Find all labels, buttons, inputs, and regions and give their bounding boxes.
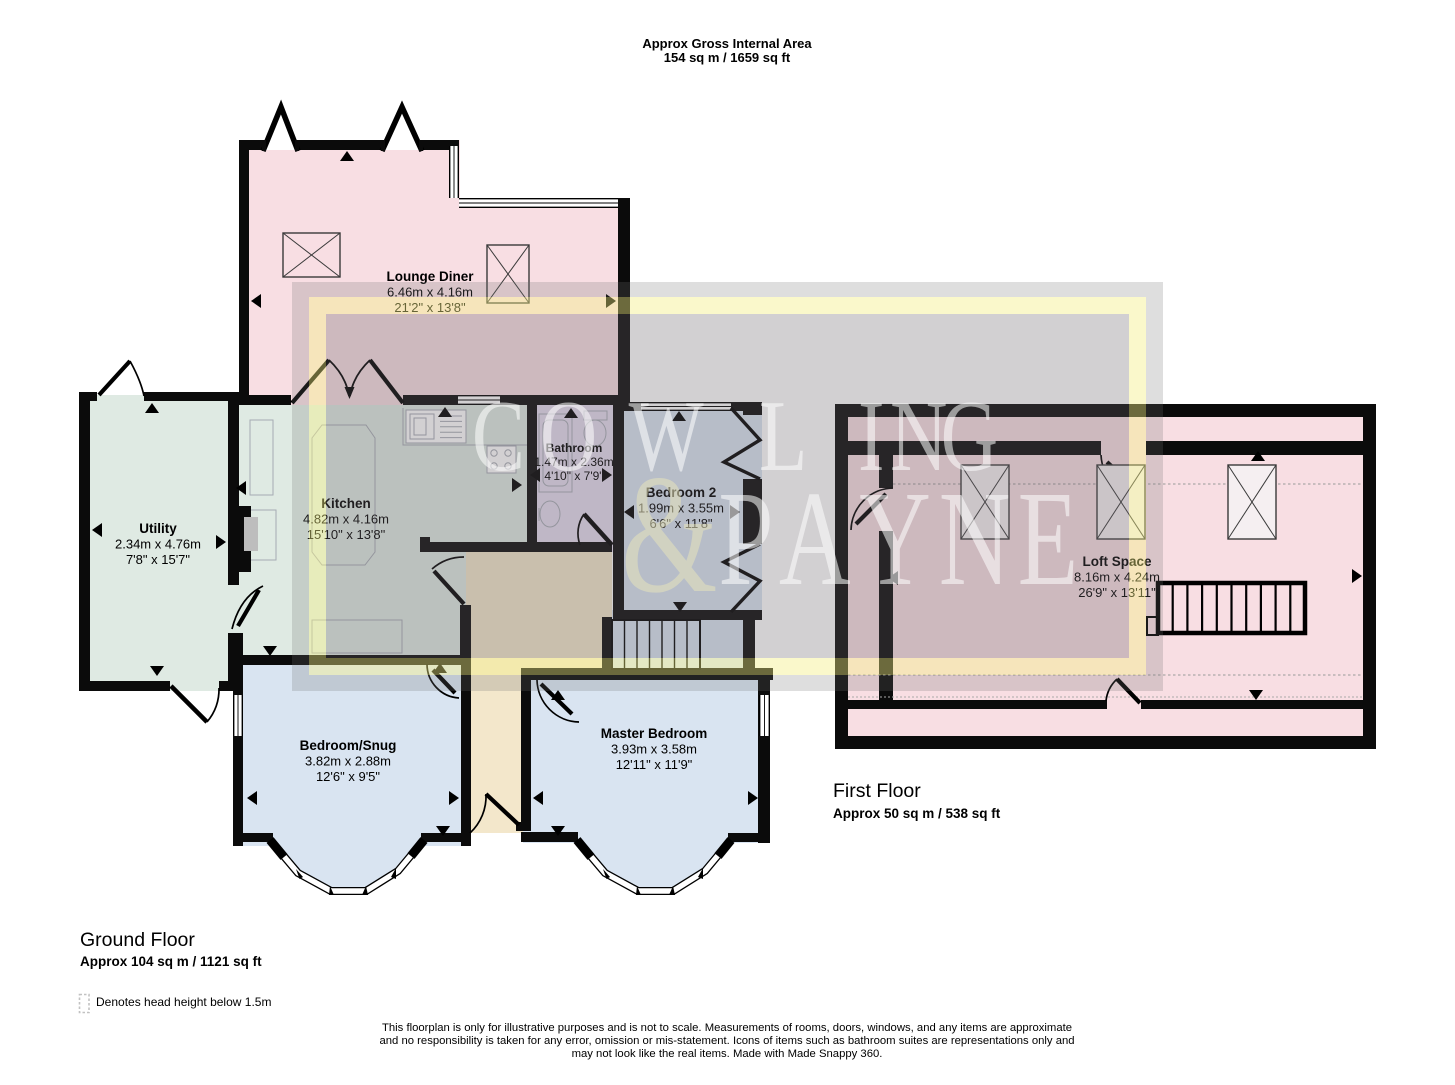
svg-text:PAYNE: PAYNE (718, 463, 1078, 614)
svg-text:First Floor: First Floor (833, 780, 921, 802)
svg-text:Utility: Utility (139, 521, 177, 536)
svg-text:and no responsibility is taken: and no responsibility is taken for any e… (379, 1035, 1074, 1047)
svg-text:Denotes head height below 1.5m: Denotes head height below 1.5m (96, 995, 271, 1009)
svg-text:2.34m x 4.76m: 2.34m x 4.76m (115, 537, 201, 552)
svg-text:Lounge Diner: Lounge Diner (387, 269, 475, 284)
svg-text:&: & (621, 440, 718, 628)
svg-text:3.93m x 3.58m: 3.93m x 3.58m (611, 742, 697, 757)
svg-text:12'6" x 9'5": 12'6" x 9'5" (316, 769, 380, 784)
svg-text:Approx 104 sq m / 1121 sq ft: Approx 104 sq m / 1121 sq ft (80, 954, 262, 969)
svg-text:7'8" x 15'7": 7'8" x 15'7" (126, 552, 190, 567)
svg-text:Approx 50 sq m / 538 sq ft: Approx 50 sq m / 538 sq ft (833, 806, 1001, 821)
svg-text:154 sq m / 1659 sq ft: 154 sq m / 1659 sq ft (664, 50, 791, 65)
svg-text:3.82m x 2.88m: 3.82m x 2.88m (305, 754, 391, 769)
svg-text:This floorplan is only for ill: This floorplan is only for illustrative … (382, 1022, 1072, 1034)
svg-text:Bedroom/Snug: Bedroom/Snug (300, 738, 397, 753)
svg-text:Ground Floor: Ground Floor (80, 929, 195, 951)
svg-text:12'11" x 11'9": 12'11" x 11'9" (616, 757, 693, 772)
svg-text:Master Bedroom: Master Bedroom (601, 726, 708, 741)
svg-text:Approx Gross Internal Area: Approx Gross Internal Area (642, 36, 812, 51)
svg-text:may not look like the real ite: may not look like the real items. Made w… (572, 1048, 883, 1060)
